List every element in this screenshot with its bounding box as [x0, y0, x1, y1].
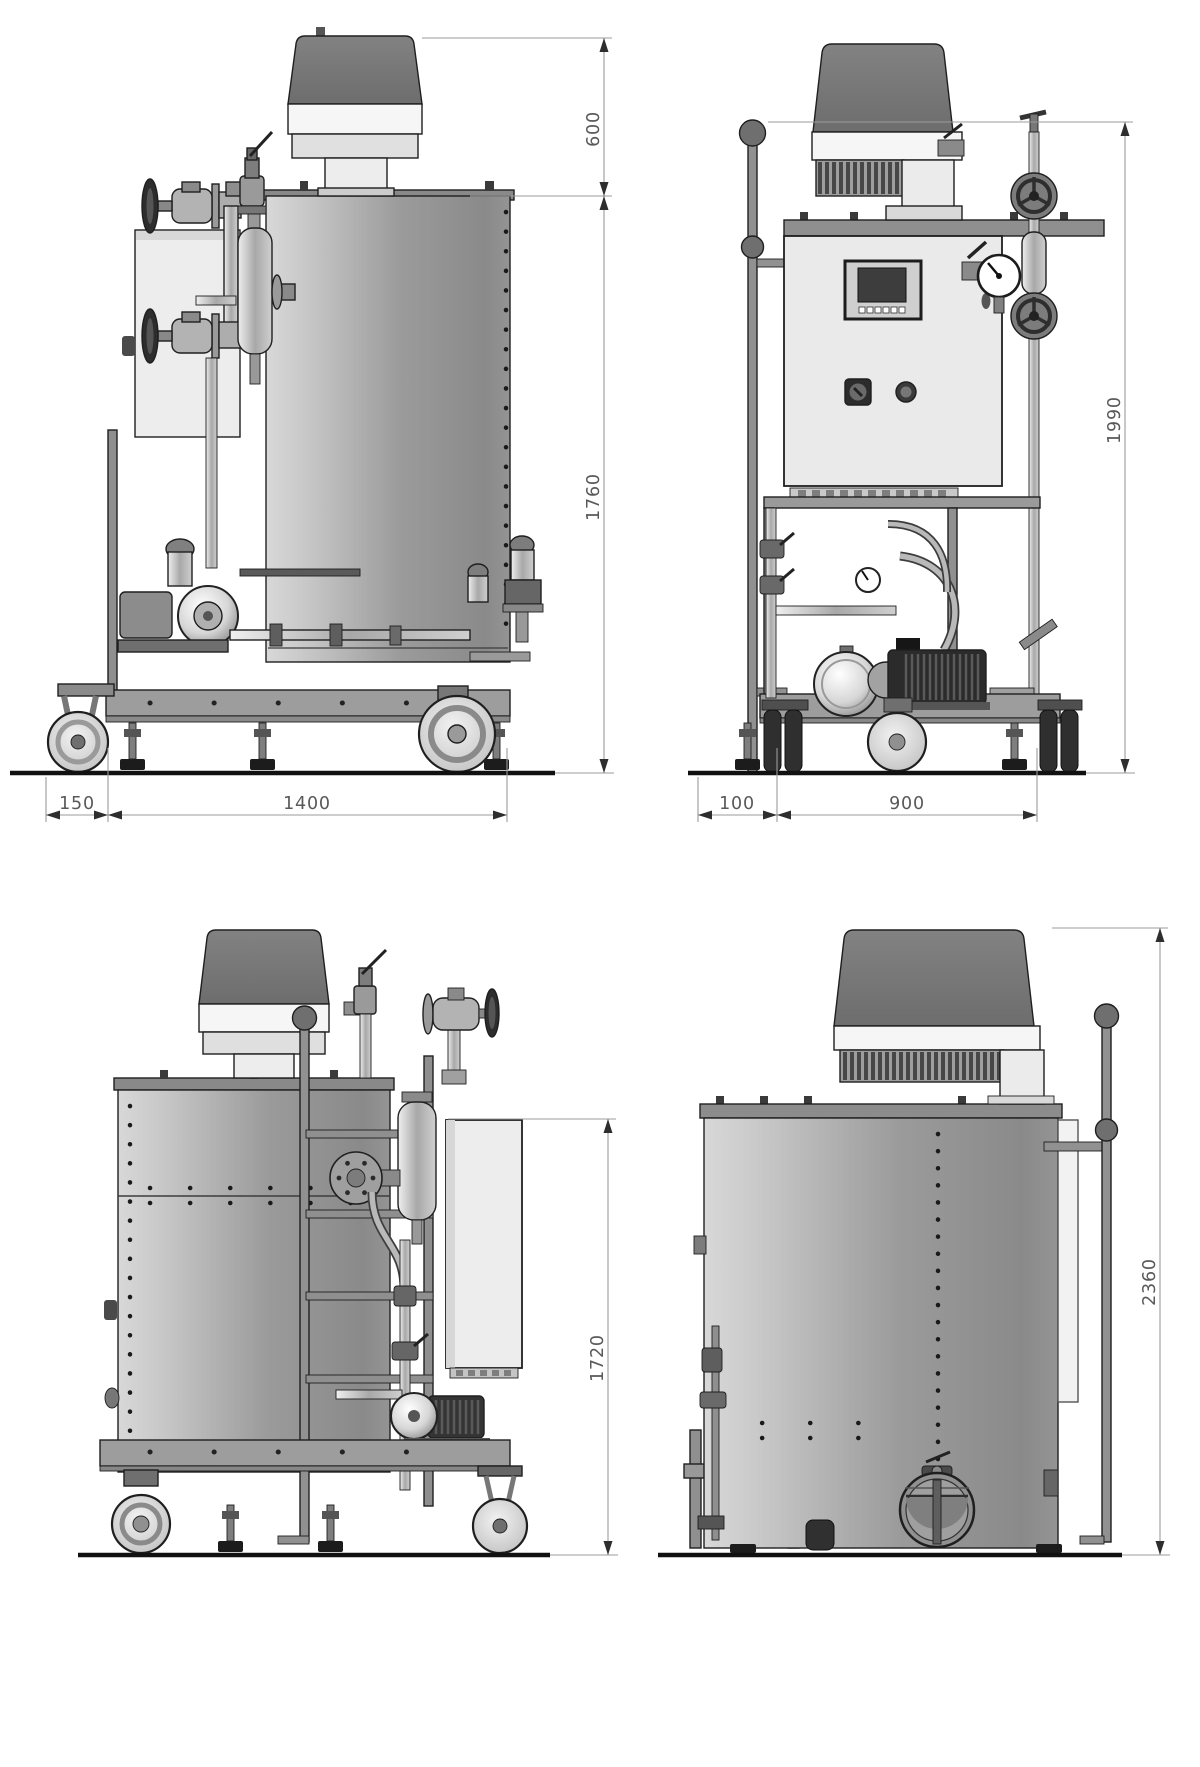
- dim-label-overall-height: 1720: [588, 1334, 608, 1382]
- side-panel: [1058, 1120, 1078, 1402]
- handle-knob: [742, 236, 764, 258]
- caster-wheel-right: [473, 1466, 527, 1553]
- dim-label-frame-length: 1400: [283, 794, 331, 814]
- level-rod: [240, 569, 360, 576]
- softener-valve-head: [834, 930, 1054, 1104]
- dim-label-caster-offset: 150: [59, 794, 95, 814]
- view-side-right: 600 1760 150 1400: [10, 27, 614, 822]
- boiler-tank: [694, 1096, 1062, 1548]
- dim-label-body-height: 1760: [584, 473, 604, 521]
- base-frame: [100, 1440, 510, 1471]
- softener-valve-head: [812, 44, 962, 220]
- view-side-left: 1720: [78, 930, 618, 1555]
- dimension-body-height: 1760: [584, 196, 609, 773]
- dim-label-head-height: 600: [584, 111, 604, 147]
- view-front: 1990 100 900: [688, 44, 1135, 822]
- transport-wheel-left: [112, 1470, 170, 1553]
- hmi-screen: [858, 268, 906, 302]
- globe-valve-upper: [142, 179, 219, 233]
- handle-knob: [1095, 1004, 1119, 1028]
- dim-label-overall-height: 1990: [1105, 396, 1125, 444]
- dimension-head-height: 600: [422, 38, 612, 196]
- technical-drawing-canvas: 600 1760 150 1400: [0, 0, 1200, 1767]
- frame-post: [108, 430, 117, 696]
- handle-knob: [293, 1006, 317, 1030]
- control-cabinet-side: [446, 1120, 522, 1378]
- view-rear: 2360: [658, 928, 1170, 1555]
- handwheel-valve: [1011, 173, 1057, 219]
- flanged-globe-valve: [423, 988, 499, 1084]
- leveling-feet: [218, 1505, 343, 1552]
- strainer-body: [1022, 232, 1046, 294]
- dim-label-overall-height: 2360: [1140, 1258, 1160, 1306]
- caster-wheel-left: [48, 684, 114, 772]
- handle-bar: [740, 120, 788, 772]
- drawing-page: 600 1760 150 1400: [0, 0, 1200, 1767]
- motor-fins: [906, 654, 978, 700]
- dim-label-frame-width: 900: [889, 794, 925, 814]
- handwheel-valve: [1011, 293, 1057, 339]
- pump-motor: [120, 592, 172, 638]
- handle-knob: [1096, 1119, 1118, 1141]
- softener-valve-head: [288, 27, 422, 196]
- pump-motor-assembly: [391, 1393, 490, 1447]
- dim-label-handle-offset: 100: [719, 794, 755, 814]
- valve-lever: [362, 950, 386, 974]
- valve-lever: [250, 132, 272, 156]
- feed-pump-assembly: [118, 539, 238, 652]
- safety-valve: [344, 950, 386, 1078]
- handle-knob: [740, 120, 766, 146]
